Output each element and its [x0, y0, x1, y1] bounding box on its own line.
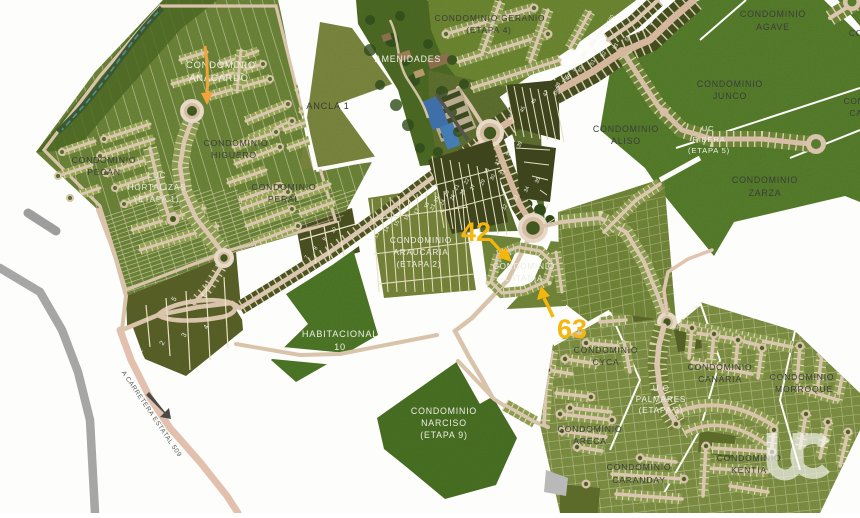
svg-text:(ETAPA 2): (ETAPA 2)	[397, 260, 442, 269]
svg-text:CONDOMINIO: CONDOMINIO	[607, 462, 672, 472]
svg-text:HABITACIONAL: HABITACIONAL	[302, 329, 378, 339]
svg-text:CONDOMINIO: CONDOMINIO	[732, 175, 798, 185]
svg-text:LATANIA: LATANIA	[505, 274, 544, 283]
svg-text:CONDOMINIO: CONDOMINIO	[770, 372, 835, 382]
svg-text:CON: CON	[843, 96, 860, 106]
svg-text:CONDOMINIO: CONDOMINIO	[252, 182, 317, 192]
svg-text:UC: UC	[702, 124, 715, 133]
svg-text:HIGUERO: HIGUERO	[211, 150, 257, 160]
svg-text:CANARIA: CANARIA	[698, 374, 742, 384]
svg-text:CONDOMINIO: CONDOMINIO	[593, 124, 659, 134]
svg-text:(ETAPA 3): (ETAPA 3)	[639, 406, 684, 415]
svg-text:CONDOMINIO GERANIO: CONDOMINIO GERANIO	[435, 13, 546, 23]
svg-text:CONDOMINIO: CONDOMINIO	[186, 59, 256, 70]
svg-text:63: 63	[557, 314, 587, 344]
svg-text:CARANDAY: CARANDAY	[612, 475, 666, 485]
svg-text:10: 10	[334, 342, 346, 352]
svg-text:CONDOMINIO: CONDOMINIO	[390, 236, 452, 245]
svg-text:KENTIA: KENTIA	[731, 465, 767, 475]
svg-text:PERAL: PERAL	[268, 194, 300, 204]
svg-text:(ETAPA 9): (ETAPA 9)	[420, 430, 467, 440]
svg-text:CONDOMINIO: CONDOMINIO	[688, 362, 753, 372]
svg-text:CYCA: CYCA	[592, 357, 619, 367]
svg-text:ARECA: ARECA	[573, 436, 607, 446]
svg-text:CONDOMINIO: CONDOMINIO	[697, 79, 763, 89]
svg-text:LUC: LUC	[148, 171, 167, 180]
svg-text:AGAVE: AGAVE	[756, 22, 790, 32]
svg-text:RIBERA: RIBERA	[692, 135, 725, 144]
svg-text:PALMARES: PALMARES	[636, 395, 686, 404]
svg-text:CONDOMINIO: CONDOMINIO	[740, 9, 806, 19]
svg-text:CONDOMINIO: CONDOMINIO	[204, 138, 269, 148]
svg-text:CA: CA	[849, 108, 860, 118]
svg-text:CONDOMINIO: CONDOMINIO	[411, 406, 477, 416]
svg-text:(ETAPA 1): (ETAPA 1)	[135, 195, 180, 204]
svg-text:HORTALIZAS: HORTALIZAS	[128, 183, 187, 192]
svg-text:CONDOMINIO: CONDOMINIO	[493, 262, 555, 271]
svg-text:CONDOMINIO: CONDOMINIO	[72, 155, 137, 165]
svg-text:AMENIDADES: AMENIDADES	[375, 54, 441, 64]
svg-text:ALISO: ALISO	[611, 136, 641, 146]
svg-text:ZARZA: ZARZA	[749, 188, 782, 198]
svg-text:CONDOMINIO: CONDOMINIO	[558, 424, 623, 434]
svg-text:JUNCO: JUNCO	[713, 91, 747, 101]
svg-text:U C: U C	[653, 384, 670, 393]
svg-text:PECÁN: PECÁN	[87, 167, 121, 177]
svg-text:(ETAPA 5): (ETAPA 5)	[688, 146, 730, 155]
svg-text:ANCLA 1: ANCLA 1	[306, 101, 349, 111]
svg-text:ANACARDO: ANACARDO	[189, 72, 249, 83]
svg-text:ARAUCARIA: ARAUCARIA	[394, 248, 449, 257]
svg-text:MORROQUE: MORROQUE	[775, 384, 833, 394]
svg-text:NARCISO: NARCISO	[421, 418, 467, 428]
svg-text:CONDOMINIO: CONDOMINIO	[574, 345, 639, 355]
svg-text:42: 42	[461, 217, 491, 247]
svg-text:(ETAPA 4): (ETAPA 4)	[466, 25, 512, 35]
svg-text:CO: CO	[849, 28, 860, 38]
